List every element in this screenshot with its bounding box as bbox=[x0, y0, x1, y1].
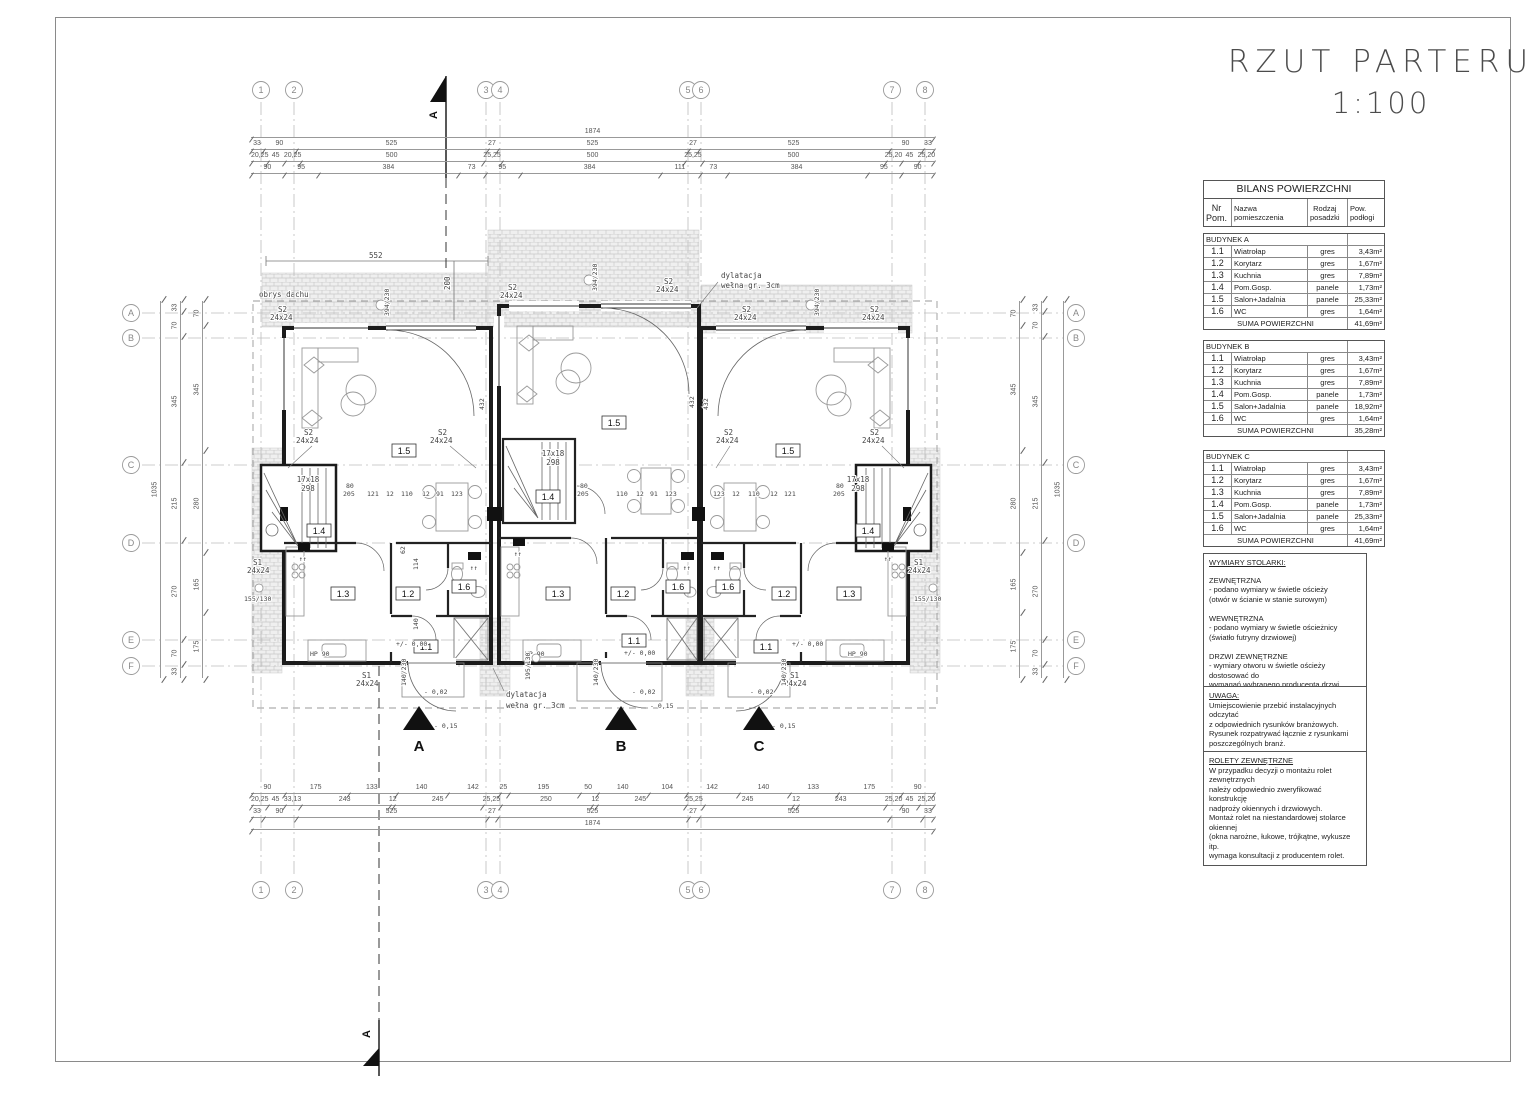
svg-text:394/230: 394/230 bbox=[591, 264, 599, 291]
svg-text:12: 12 bbox=[636, 490, 644, 498]
stair-dim: 298 bbox=[546, 458, 560, 467]
room-label: 1.4 bbox=[313, 526, 326, 536]
room-label: 1.6 bbox=[672, 582, 685, 592]
svg-text:80: 80 bbox=[346, 482, 354, 490]
svg-text:HP 90: HP 90 bbox=[848, 650, 868, 658]
svg-text:24x24: 24x24 bbox=[500, 291, 523, 300]
svg-text:4: 4 bbox=[497, 85, 502, 95]
stair-dim: 17x18 bbox=[542, 449, 565, 458]
svg-text:91: 91 bbox=[650, 490, 658, 498]
entrance-marker-a bbox=[403, 706, 435, 730]
svg-text:140/230: 140/230 bbox=[592, 659, 600, 686]
roof-outline-label: obrys dachu bbox=[259, 290, 309, 299]
svg-text:195/130: 195/130 bbox=[524, 653, 532, 680]
stair-dim: 17x18 bbox=[297, 475, 320, 484]
building-table-c: BUDYNEK C 1.1Wiatrołapgres3,43m² 1.2Kory… bbox=[1203, 450, 1385, 547]
svg-text:24x24: 24x24 bbox=[716, 436, 739, 445]
balance-table-title: BILANS POWIERZCHNI bbox=[1204, 181, 1384, 199]
svg-text:140/230: 140/230 bbox=[400, 659, 408, 686]
entrance-label-b: B bbox=[616, 738, 627, 755]
svg-text:A: A bbox=[1073, 308, 1079, 318]
svg-text:12: 12 bbox=[422, 490, 430, 498]
svg-text:12: 12 bbox=[386, 490, 394, 498]
svg-text:123: 123 bbox=[451, 490, 463, 498]
table-row: 1.5Salon+Jadalniapanele25,33m² bbox=[1204, 510, 1384, 522]
vent-arrows: ↑↑ bbox=[470, 564, 478, 572]
unit-b: 17x18 298 ↑↑ ↑↑ 1. bbox=[493, 264, 700, 755]
note-title: WYMIARY STOLARKI: bbox=[1209, 558, 1361, 568]
svg-text:6: 6 bbox=[698, 85, 703, 95]
svg-text:+/- 0,00: +/- 0,00 bbox=[792, 640, 823, 648]
note-title: ROLETY ZEWNĘTRZNE bbox=[1209, 756, 1361, 766]
svg-text:- 0,02: - 0,02 bbox=[632, 688, 656, 696]
svg-text:24x24: 24x24 bbox=[356, 679, 379, 688]
svg-text:123: 123 bbox=[713, 490, 725, 498]
svg-text:432: 432 bbox=[688, 396, 696, 408]
dim-left-inner: 70345280165175 bbox=[192, 301, 203, 678]
col-header-nr: Nr Pom. bbox=[1204, 199, 1232, 226]
table-row: 1.3Kuchniagres7,89m² bbox=[1204, 486, 1384, 498]
col-header-name: Nazwa pomieszczenia bbox=[1232, 199, 1308, 226]
drawing-sheet: obrys dachu 552 200 12 34 bbox=[55, 17, 1511, 1062]
building-name: BUDYNEK B bbox=[1204, 341, 1348, 352]
table-row: 1.5Salon+Jadalniapanele18,92m² bbox=[1204, 400, 1384, 412]
table-sum-row: SUMA POWIERZCHNI41,69m² bbox=[1204, 317, 1384, 329]
svg-text:dylatacja: dylatacja bbox=[506, 690, 547, 699]
svg-text:HP 90: HP 90 bbox=[310, 650, 330, 658]
svg-text:- 0,02: - 0,02 bbox=[750, 688, 774, 696]
svg-text:205: 205 bbox=[833, 490, 845, 498]
room-label: 1.2 bbox=[617, 589, 630, 599]
svg-text:+/- 0,00: +/- 0,00 bbox=[396, 640, 427, 648]
svg-text:A: A bbox=[128, 308, 134, 318]
svg-text:E: E bbox=[1073, 635, 1079, 645]
table-row: 1.6WCgres1,64m² bbox=[1204, 305, 1384, 317]
vent-icon bbox=[468, 552, 481, 560]
entrance-label-c: C bbox=[754, 738, 765, 755]
svg-text:24x24: 24x24 bbox=[656, 285, 679, 294]
svg-text:140/230: 140/230 bbox=[780, 659, 788, 686]
table-row: 1.4Pom.Gosp.panele1,73m² bbox=[1204, 498, 1384, 510]
svg-text:1: 1 bbox=[258, 85, 263, 95]
room-label: 1.5 bbox=[782, 446, 795, 456]
svg-text:80: 80 bbox=[580, 482, 588, 490]
table-row: 1.2Korytarzgres1,67m² bbox=[1204, 474, 1384, 486]
room-label: 1.5 bbox=[398, 446, 411, 456]
drawing-title: RZUT PARTERU bbox=[1211, 44, 1527, 80]
table-row: 1.6WCgres1,64m² bbox=[1204, 412, 1384, 424]
svg-text:- 0,15: - 0,15 bbox=[772, 722, 796, 730]
svg-text:6: 6 bbox=[698, 885, 703, 895]
svg-text:4: 4 bbox=[497, 885, 502, 895]
balance-table-header: BILANS POWIERZCHNI Nr Pom. Nazwa pomiesz… bbox=[1203, 180, 1385, 227]
stair-dim: 298 bbox=[851, 484, 865, 493]
svg-text:24x24: 24x24 bbox=[908, 566, 931, 575]
svg-text:D: D bbox=[1073, 538, 1080, 548]
dim-bottom-total: 1874 bbox=[251, 819, 934, 830]
svg-text:8: 8 bbox=[922, 85, 927, 95]
dim-right-main: 33703452152707033 bbox=[1031, 301, 1042, 678]
svg-text:D: D bbox=[128, 538, 135, 548]
table-row: 1.3Kuchniagres7,89m² bbox=[1204, 269, 1384, 281]
paving-hatch bbox=[252, 230, 940, 696]
table-sum-row: SUMA POWIERZCHNI41,69m² bbox=[1204, 534, 1384, 546]
svg-text:5: 5 bbox=[685, 885, 690, 895]
svg-text:+/- 0,00: +/- 0,00 bbox=[624, 649, 655, 657]
room-label: 1.3 bbox=[552, 589, 565, 599]
table-row: 1.2Korytarzgres1,67m² bbox=[1204, 364, 1384, 376]
unit-c: 17x18 298 ↑↑ ↑↑ 1.5 1.4 1.3 1. bbox=[697, 289, 941, 755]
svg-text:C: C bbox=[1073, 460, 1080, 470]
room-label: 1.2 bbox=[778, 589, 791, 599]
vent-icon bbox=[513, 538, 525, 546]
section-marker-bottom: A bbox=[361, 666, 379, 1076]
note-uwaga: UWAGA: Umiejscowienie przebić instalacyj… bbox=[1203, 686, 1367, 753]
dim-bottom-row3: 339052527525275259033 bbox=[251, 807, 934, 818]
vent-icon bbox=[298, 543, 310, 551]
svg-text:3: 3 bbox=[483, 85, 488, 95]
note-rolety: ROLETY ZEWNĘTRZNE W przypadku decyzji o … bbox=[1203, 751, 1367, 866]
svg-text:80: 80 bbox=[836, 482, 844, 490]
svg-text:140: 140 bbox=[412, 618, 420, 630]
svg-text:24x24: 24x24 bbox=[862, 436, 885, 445]
svg-text:121: 121 bbox=[367, 490, 379, 498]
svg-text:205: 205 bbox=[577, 490, 589, 498]
svg-text:24x24: 24x24 bbox=[247, 566, 270, 575]
svg-text:2: 2 bbox=[291, 85, 296, 95]
building-table-b: BUDYNEK B 1.1Wiatrołapgres3,43m² 1.2Kory… bbox=[1203, 340, 1385, 437]
room-label: 1.3 bbox=[337, 589, 350, 599]
svg-text:7: 7 bbox=[889, 85, 894, 95]
table-row: 1.4Pom.Gosp.panele1,73m² bbox=[1204, 388, 1384, 400]
svg-text:24x24: 24x24 bbox=[430, 436, 453, 445]
room-label: 1.6 bbox=[458, 582, 471, 592]
dim-right-total: 1035 bbox=[1053, 301, 1064, 678]
svg-text:24x24: 24x24 bbox=[734, 313, 757, 322]
dim-top-row3: 20,254520,2550025,2550025,2550025,204525… bbox=[251, 151, 934, 162]
svg-text:wełna gr. 3cm: wełna gr. 3cm bbox=[506, 701, 565, 710]
svg-text:394/230: 394/230 bbox=[813, 289, 821, 316]
svg-text:7: 7 bbox=[889, 885, 894, 895]
stair-dim: 17x18 bbox=[847, 475, 870, 484]
svg-text:F: F bbox=[128, 661, 134, 671]
note-title: UWAGA: bbox=[1209, 691, 1361, 701]
svg-text:62: 62 bbox=[399, 546, 407, 554]
room-label: 1.4 bbox=[862, 526, 875, 536]
vent-arrows: ↑↑ bbox=[713, 564, 721, 572]
stair-dim: 298 bbox=[301, 484, 315, 493]
svg-text:123: 123 bbox=[665, 490, 677, 498]
room-label: 1.5 bbox=[608, 418, 621, 428]
dim-bottom-row2: 20,254533,132431224525,252501224525,2524… bbox=[251, 795, 934, 806]
svg-text:B: B bbox=[128, 333, 134, 343]
note-body: ZEWNĘTRZNA - podano wymiary w świetle oś… bbox=[1209, 576, 1361, 690]
note-wymiary-stolarki: WYMIARY STOLARKI: ZEWNĘTRZNA - podano wy… bbox=[1203, 553, 1367, 695]
svg-text:- 0,15: - 0,15 bbox=[650, 702, 674, 710]
table-row: 1.1Wiatrołapgres3,43m² bbox=[1204, 462, 1384, 474]
svg-text:F: F bbox=[1073, 661, 1079, 671]
table-row: 1.3Kuchniagres7,89m² bbox=[1204, 376, 1384, 388]
table-sum-row: SUMA POWIERZCHNI35,28m² bbox=[1204, 424, 1384, 436]
room-label: 1.6 bbox=[722, 582, 735, 592]
dim-top-row2: 339052527525275259033 bbox=[251, 139, 934, 150]
svg-text:110: 110 bbox=[748, 490, 760, 498]
svg-text:114: 114 bbox=[412, 558, 420, 570]
room-label: 1.3 bbox=[843, 589, 856, 599]
svg-text:155/130: 155/130 bbox=[914, 595, 941, 603]
table-row: 1.4Pom.Gosp.panele1,73m² bbox=[1204, 281, 1384, 293]
vent-icon bbox=[882, 543, 894, 551]
svg-text:A: A bbox=[361, 1030, 373, 1038]
vent-icon bbox=[681, 552, 694, 560]
room-label: 1.1 bbox=[760, 642, 773, 652]
svg-text:205: 205 bbox=[343, 490, 355, 498]
svg-text:155/130: 155/130 bbox=[244, 595, 271, 603]
svg-text:- 0,15: - 0,15 bbox=[434, 722, 458, 730]
table-row: 1.1Wiatrołapgres3,43m² bbox=[1204, 352, 1384, 364]
svg-text:5: 5 bbox=[685, 85, 690, 95]
svg-text:110: 110 bbox=[401, 490, 413, 498]
dim-left-main: 33703452152707033 bbox=[170, 301, 181, 678]
dim-left-total: 1035 bbox=[150, 301, 161, 678]
table-row: 1.5Salon+Jadalniapanele25,33m² bbox=[1204, 293, 1384, 305]
entrance-marker-b bbox=[605, 706, 637, 730]
svg-text:12: 12 bbox=[770, 490, 778, 498]
svg-text:3: 3 bbox=[483, 885, 488, 895]
building-name: BUDYNEK C bbox=[1204, 451, 1348, 462]
drawing-scale: 1:100 bbox=[1211, 86, 1527, 120]
room-label: 1.4 bbox=[542, 492, 555, 502]
dim-right-inner: 70345280165175 bbox=[1009, 301, 1020, 678]
svg-text:24x24: 24x24 bbox=[270, 313, 293, 322]
table-row: 1.6WCgres1,64m² bbox=[1204, 522, 1384, 534]
col-header-floor: Rodzaj posadzki bbox=[1308, 199, 1348, 226]
building-name: BUDYNEK A bbox=[1204, 234, 1348, 245]
svg-text:- 0,02: - 0,02 bbox=[424, 688, 448, 696]
svg-text:dylatacja: dylatacja bbox=[721, 271, 762, 280]
vent-arrows: ↑↑ bbox=[884, 555, 892, 563]
col-header-area: Pow. podłogi bbox=[1348, 199, 1384, 226]
svg-text:wełna gr. 3cm: wełna gr. 3cm bbox=[721, 281, 780, 290]
svg-text:432: 432 bbox=[478, 398, 486, 410]
table-row: 1.1Wiatrołapgres3,43m² bbox=[1204, 245, 1384, 257]
vent-arrows: ↑↑ bbox=[299, 555, 307, 563]
svg-text:121: 121 bbox=[784, 490, 796, 498]
svg-text:432: 432 bbox=[702, 398, 710, 410]
svg-text:394/230: 394/230 bbox=[383, 289, 391, 316]
svg-text:24x24: 24x24 bbox=[862, 313, 885, 322]
svg-text:A: A bbox=[428, 111, 440, 119]
room-label: 1.1 bbox=[628, 636, 641, 646]
vent-arrows: ↑↑ bbox=[514, 550, 522, 558]
entrance-label-a: A bbox=[414, 738, 425, 755]
dim-bottom-row1: 9017513314014225195501401041421401331759… bbox=[251, 783, 934, 794]
svg-text:12: 12 bbox=[732, 490, 740, 498]
dim-200: 200 bbox=[443, 276, 452, 290]
svg-text:8: 8 bbox=[922, 885, 927, 895]
table-row: 1.2Korytarzgres1,67m² bbox=[1204, 257, 1384, 269]
svg-text:110: 110 bbox=[616, 490, 628, 498]
dim-top-row4: 90953847395384111733849590 bbox=[251, 163, 934, 174]
svg-text:C: C bbox=[128, 460, 135, 470]
dim-top-total: 1874 bbox=[251, 127, 934, 138]
building-table-a: BUDYNEK A 1.1Wiatrołapgres3,43m² 1.2Kory… bbox=[1203, 233, 1385, 330]
svg-text:E: E bbox=[128, 635, 134, 645]
svg-text:2: 2 bbox=[291, 885, 296, 895]
room-label: 1.2 bbox=[402, 589, 415, 599]
svg-text:24x24: 24x24 bbox=[296, 436, 319, 445]
note-body: W przypadku decyzji o montażu rolet zewn… bbox=[1209, 766, 1361, 861]
svg-text:1: 1 bbox=[258, 885, 263, 895]
note-body: Umiejscowienie przebić instalacyjnych od… bbox=[1209, 701, 1361, 749]
dim-552: 552 bbox=[369, 251, 383, 260]
vent-icon bbox=[711, 552, 724, 560]
vent-arrows: ↑↑ bbox=[683, 564, 691, 572]
svg-text:91: 91 bbox=[436, 490, 444, 498]
svg-text:B: B bbox=[1073, 333, 1079, 343]
unit-a: 17x18 298 ↑↑ ↑↑ 1.5 bbox=[244, 289, 495, 755]
